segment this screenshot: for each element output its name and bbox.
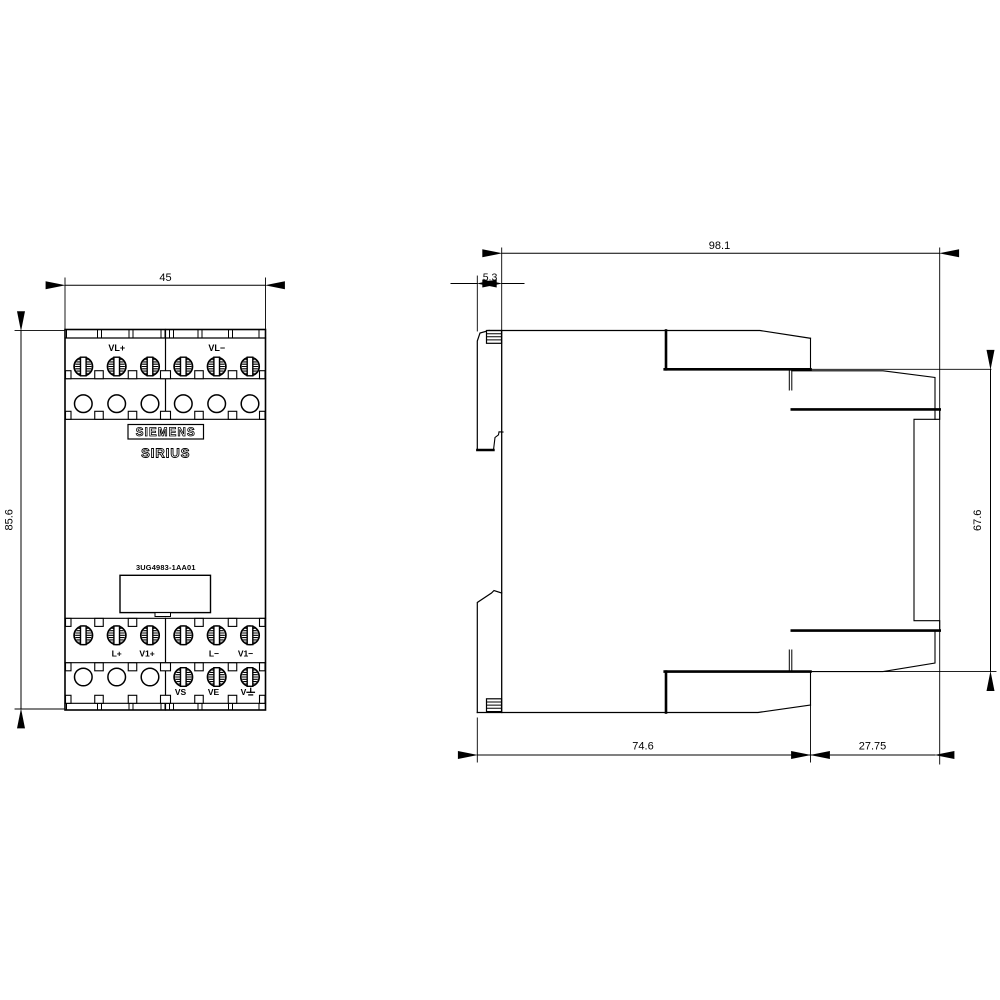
top-comb [67,330,260,337]
bottom-comb [67,704,260,710]
dim-5-3-label: 5.3 [483,272,498,284]
siemens-logo: SIEMENS [136,427,196,439]
dimension-height-85-6: 85.6 [4,331,65,709]
din-rail-clip-top [477,331,503,451]
terminal-label-v-earth: V [241,687,247,697]
dim-67-6-label: 67.6 [972,510,984,531]
top-wire-holes [75,395,259,413]
dimension-clip-5-3: 5.3 [451,272,524,332]
label-window [120,575,211,612]
mid-screw-terminals [74,626,259,645]
upper-mid-terminal-block [665,331,811,370]
side-view: 98.1 5.3 67.6 74.6 27.75 [451,240,996,764]
terminal-label-vl-minus: VL− [208,343,225,353]
bottom-wire-holes [75,668,159,686]
terminal-label-vs: VS [175,687,187,697]
dim-45-label: 45 [159,272,171,284]
dim-85-6-label: 85.6 [4,509,16,530]
din-rail-clip-bottom [477,591,501,713]
lower-front-terminal-block [789,631,939,672]
dimension-depth-98-1: 98.1 [502,240,940,764]
terminal-label-ve: VE [208,687,220,697]
dimension-block-27-75: 27.75 [811,741,936,756]
part-number: 3UG4983-1AA01 [136,563,196,572]
dim-98-1-label: 98.1 [709,240,730,252]
earth-ground-icon [247,688,254,695]
dimension-span-67-6: 67.6 [811,369,997,671]
dimensional-drawing-svg: VL+ VL− SIEMENS SIRIUS 3UG4983-1AA01 L+ … [0,0,1000,1000]
terminal-label-v1-plus: V1+ [139,649,154,659]
dimension-width-45: 45 [65,272,266,329]
dim-27-75-label: 27.75 [859,741,887,753]
drawing-canvas: VL+ VL− SIEMENS SIRIUS 3UG4983-1AA01 L+ … [0,0,1000,1000]
upper-front-terminal-block [789,369,939,630]
terminal-label-v1-minus: V1− [238,649,253,659]
dimension-body-74-6: 74.6 [477,672,810,762]
terminal-label-l-plus: L+ [112,649,122,659]
label-window-tab [155,613,171,617]
terminal-label-l-minus: L− [209,649,219,659]
dim-74-6-label: 74.6 [632,741,653,753]
front-view: VL+ VL− SIEMENS SIRIUS 3UG4983-1AA01 L+ … [4,272,266,710]
sirius-label: SIRIUS [141,446,190,461]
bottom-screw-terminals [174,668,259,687]
terminal-label-vl-plus: VL+ [108,343,125,353]
side-body-outline [477,331,810,713]
lower-mid-terminal-block [665,672,811,713]
